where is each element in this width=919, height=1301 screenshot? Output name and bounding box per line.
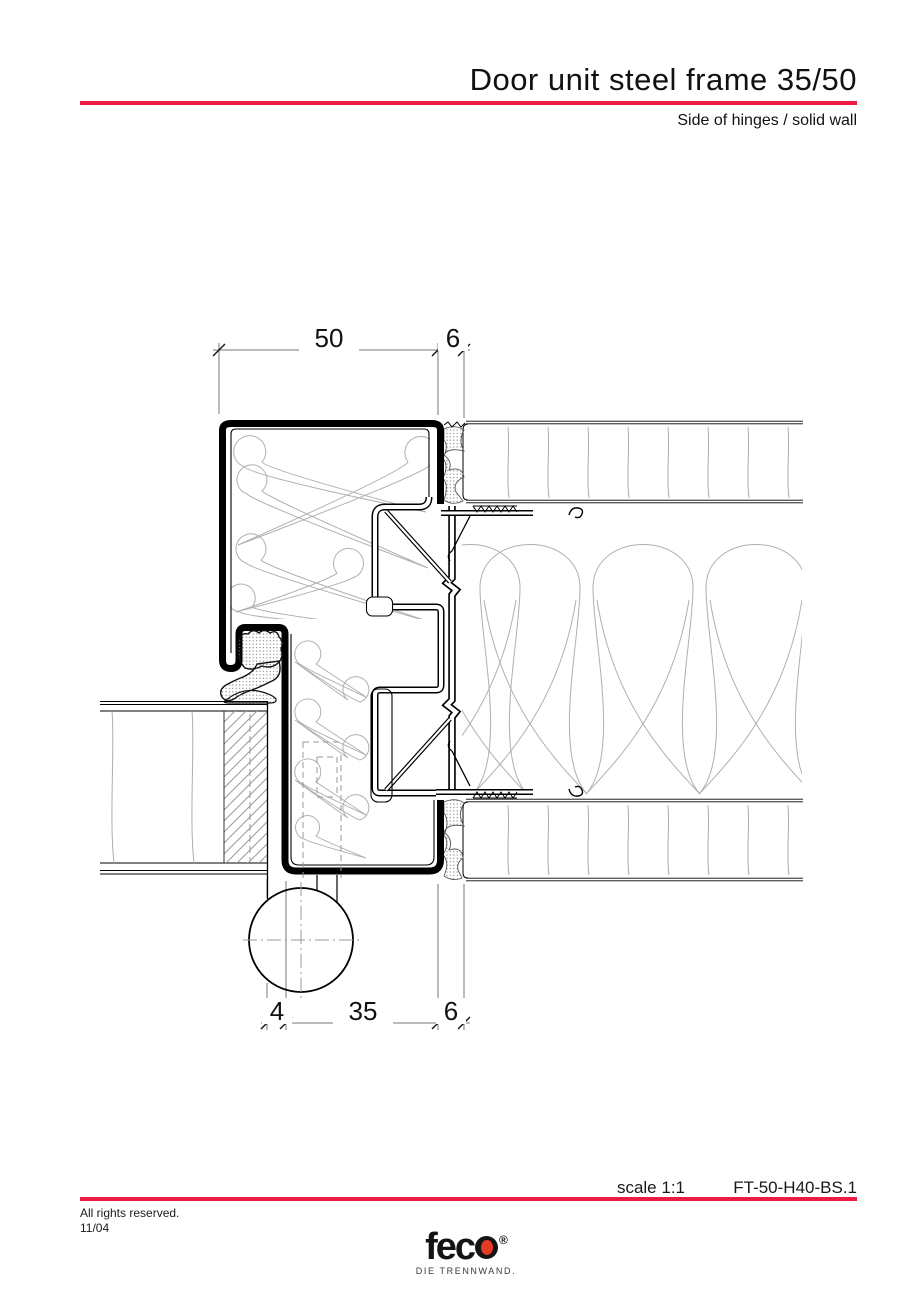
dim-label-hinge-gap: 4	[262, 998, 292, 1024]
feco-logo: fec® DIE TRENNWAND.	[414, 1231, 518, 1276]
footer-rule	[80, 1197, 857, 1201]
registered-mark: ®	[499, 1233, 508, 1247]
wall-panel-bottom	[463, 801, 803, 880]
dim-label-top-joint: 6	[438, 325, 468, 351]
logo-tagline: DIE TRENNWAND.	[414, 1266, 518, 1276]
logo-wordmark: fec®	[414, 1231, 518, 1263]
page-title: Door unit steel frame 35/50	[0, 62, 857, 98]
logo-text: fec	[425, 1226, 474, 1268]
cavity-insulation	[413, 545, 813, 795]
header-rule	[80, 101, 857, 105]
frame-insulation-bottom	[295, 641, 369, 858]
rights-notice: All rights reserved.	[80, 1206, 179, 1220]
dim-label-frame-depth: 35	[333, 998, 393, 1024]
technical-drawing	[0, 0, 919, 1301]
dim-label-frame-width: 50	[299, 325, 359, 351]
drawing-number: FT-50-H40-BS.1	[700, 1178, 857, 1198]
door-leaf	[100, 701, 268, 899]
sealant-joint-top	[443, 422, 465, 503]
scale-label: scale 1:1	[600, 1178, 685, 1198]
logo-o-icon	[475, 1236, 498, 1259]
revision-date: 11/04	[80, 1221, 109, 1235]
wall-connection-profile	[367, 497, 583, 802]
dim-label-bottom-joint: 6	[436, 998, 466, 1024]
page-subtitle: Side of hinges / solid wall	[0, 112, 857, 130]
logo-o-red-dot	[481, 1240, 493, 1255]
wall-panel-top	[463, 423, 803, 502]
sealant-joint-bottom	[443, 800, 464, 880]
